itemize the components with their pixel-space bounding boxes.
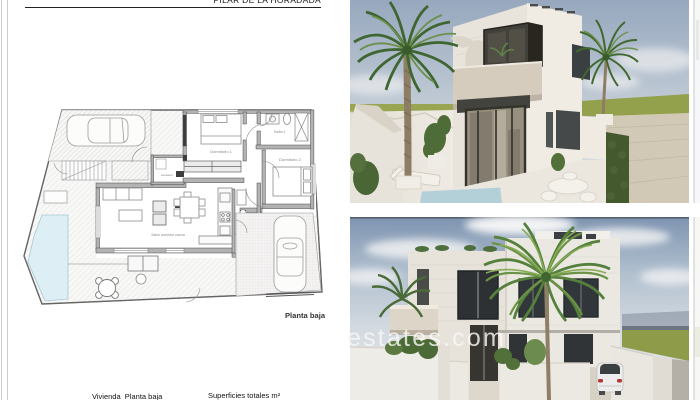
svg-text:Vivienda Planta baja: Vivienda Planta baja [92,392,163,400]
svg-text:Dormitorio 1: Dormitorio 1 [210,149,233,154]
svg-text:Lavadero: Lavadero [161,173,174,177]
svg-text:Baño 1: Baño 1 [274,130,285,134]
svg-text:Planta baja: Planta baja [285,311,326,320]
svg-text:Superficies totales m²: Superficies totales m² [208,391,281,400]
svg-text:Salón comedor cocina: Salón comedor cocina [151,233,185,237]
svg-text:Dormitorio 2: Dormitorio 2 [279,157,302,162]
